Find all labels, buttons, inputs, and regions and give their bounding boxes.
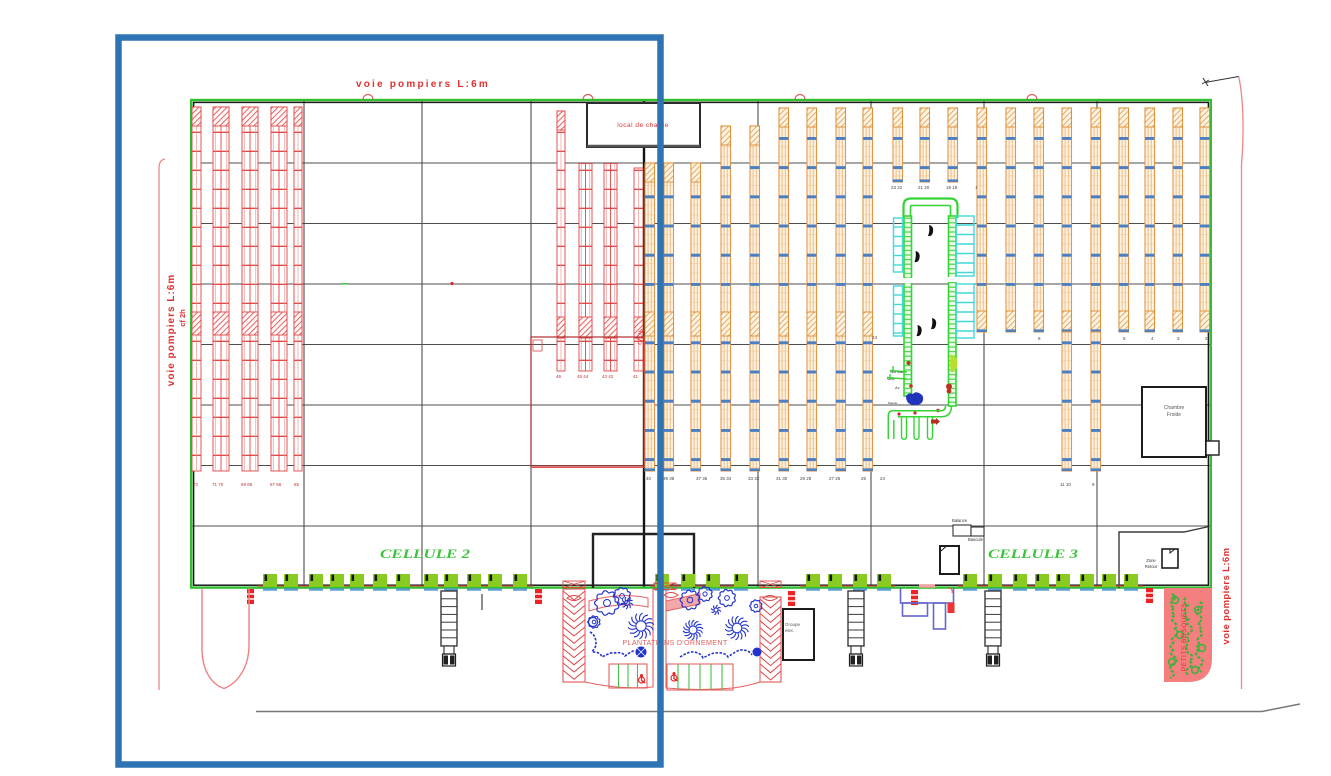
svg-text:24: 24 [880,476,886,481]
svg-text:27 26: 27 26 [829,476,841,481]
svg-text:46: 46 [556,374,562,379]
svg-text:39 38: 39 38 [663,476,675,481]
svg-text:elec.: elec. [785,628,795,633]
svg-text:Froide: Froide [1167,412,1181,418]
svg-text:24: 24 [872,335,878,340]
svg-text:35 34: 35 34 [720,476,732,481]
svg-text:31 30: 31 30 [776,476,788,481]
svg-text:65: 65 [294,482,300,487]
svg-text:23 22: 23 22 [891,185,903,190]
svg-text:71 70: 71 70 [212,482,224,487]
svg-text:69 68: 69 68 [241,482,253,487]
svg-text:PLANTATIONS D'ORNEMENT: PLANTATIONS D'ORNEMENT [622,638,727,647]
svg-text:40: 40 [646,476,652,481]
svg-text:PETITS BOSQUETS: PETITS BOSQUETS [1181,603,1188,671]
svg-text:Balance: Balance [952,518,968,523]
svg-text:21 20: 21 20 [918,185,930,190]
svg-text:voie pompiers L:6m: voie pompiers L:6m [1221,548,1232,645]
svg-text:11 10: 11 10 [1060,482,1071,487]
svg-text:45 44: 45 44 [577,374,589,379]
svg-text:19 18: 19 18 [946,185,958,190]
svg-text:voie pompiers L:6m: voie pompiers L:6m [356,79,490,90]
svg-text:CELLULE 3: CELLULE 3 [988,546,1079,561]
svg-text:Bascule: Bascule [968,537,984,542]
svg-text:72: 72 [193,482,199,487]
svg-text:Zone: Zone [1146,558,1156,563]
svg-text:25: 25 [861,476,867,481]
svg-text:voie pompiers L:6m: voie pompiers L:6m [166,274,177,386]
svg-text:33 32: 33 32 [748,476,760,481]
svg-text:cf 2h: cf 2h [178,309,187,327]
svg-text:CELLULE 2: CELLULE 2 [380,546,471,561]
svg-text:Chambre: Chambre [1164,405,1185,411]
svg-text:43 42: 43 42 [602,374,614,379]
svg-text:Av: Av [894,385,901,390]
svg-text:Groupe: Groupe [785,622,801,627]
svg-text:Palette: Palette [888,401,898,405]
svg-text:Retour: Retour [1145,564,1158,569]
svg-text:37 36: 37 36 [696,476,708,481]
svg-text:41: 41 [633,374,639,379]
svg-text:Mise quai: Mise quai [890,370,903,374]
svg-text:67 66: 67 66 [270,482,282,487]
svg-text:29 28: 29 28 [800,476,812,481]
svg-text:Sortie: Sortie [887,377,895,381]
